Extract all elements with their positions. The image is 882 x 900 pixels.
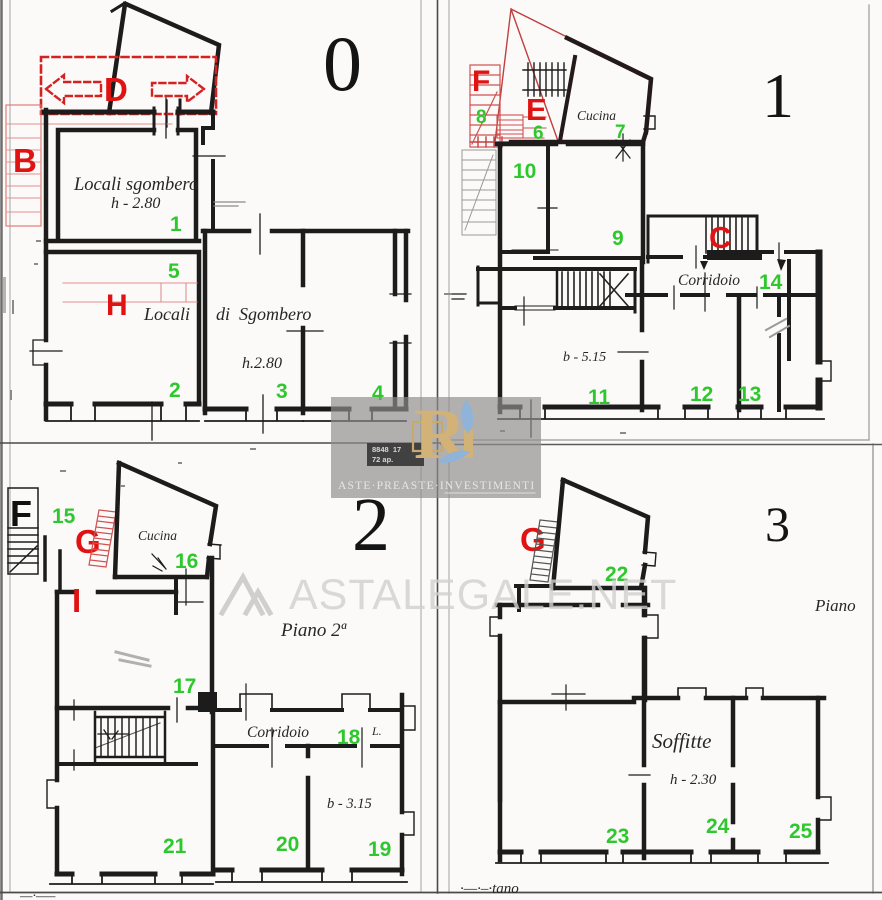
svg-text:b - 3.15: b - 3.15 xyxy=(327,796,372,812)
svg-text:H: H xyxy=(106,289,128,322)
svg-text:Corridoio: Corridoio xyxy=(678,272,740,289)
svg-text:Locali sgombero: Locali sgombero xyxy=(73,175,198,195)
svg-text:h.2.80: h.2.80 xyxy=(242,355,282,372)
svg-text:8: 8 xyxy=(476,107,487,128)
svg-text:1: 1 xyxy=(170,213,182,236)
svg-text:3: 3 xyxy=(276,380,288,403)
svg-text:Cucina: Cucina xyxy=(577,108,616,123)
svg-text:25: 25 xyxy=(789,820,813,843)
svg-text:ASTE·PREASTE·INVESTIMENTI: ASTE·PREASTE·INVESTIMENTI xyxy=(338,480,535,492)
svg-text:3: 3 xyxy=(765,496,790,552)
svg-text:·—·–·tano: ·—·–·tano xyxy=(460,881,519,897)
svg-text:10: 10 xyxy=(513,160,536,183)
svg-text:B: B xyxy=(13,142,37,179)
svg-text:14: 14 xyxy=(759,271,783,294)
svg-text:1: 1 xyxy=(762,60,794,131)
svg-text:8848 17: 8848 17 xyxy=(372,445,401,454)
svg-text:I: I xyxy=(72,582,81,619)
svg-text:5: 5 xyxy=(168,260,180,283)
svg-text:h - 2.30: h - 2.30 xyxy=(670,772,717,788)
svg-text:di Sgombero: di Sgombero xyxy=(216,304,311,324)
svg-text:F: F xyxy=(472,65,490,98)
svg-text:b - 5.15: b - 5.15 xyxy=(563,350,606,365)
svg-text:72 ap.: 72 ap. xyxy=(372,455,393,464)
svg-text:23: 23 xyxy=(606,825,629,848)
svg-text:17: 17 xyxy=(173,675,196,698)
svg-text:h - 2.80: h - 2.80 xyxy=(111,195,160,212)
svg-text:Corridoio: Corridoio xyxy=(247,724,309,741)
svg-text:13: 13 xyxy=(738,383,761,406)
svg-text:6: 6 xyxy=(533,123,544,144)
svg-text:2: 2 xyxy=(169,379,181,402)
svg-text:Cucina: Cucina xyxy=(138,528,177,543)
svg-text:D: D xyxy=(104,71,128,108)
svg-text:F: F xyxy=(10,493,32,534)
svg-text:Soffitte: Soffitte xyxy=(652,729,712,753)
svg-text:0: 0 xyxy=(323,20,362,107)
svg-text:Piano 2ª: Piano 2ª xyxy=(280,620,347,641)
svg-text:21: 21 xyxy=(163,835,187,858)
svg-text:19: 19 xyxy=(368,838,391,861)
svg-text:—·–—: —·–— xyxy=(19,889,56,900)
svg-text:12: 12 xyxy=(690,383,713,406)
svg-text:9: 9 xyxy=(612,227,624,250)
svg-text:16: 16 xyxy=(175,550,198,573)
svg-text:Piano: Piano xyxy=(814,596,856,615)
svg-text:E: E xyxy=(526,92,547,127)
svg-text:Locali: Locali xyxy=(143,304,190,324)
svg-text:L.: L. xyxy=(371,724,382,738)
svg-text:C: C xyxy=(709,220,731,255)
svg-text:ASTALEGALE.NET: ASTALEGALE.NET xyxy=(289,571,677,619)
svg-text:20: 20 xyxy=(276,833,299,856)
svg-text:24: 24 xyxy=(706,815,730,838)
svg-text:15: 15 xyxy=(52,505,76,528)
